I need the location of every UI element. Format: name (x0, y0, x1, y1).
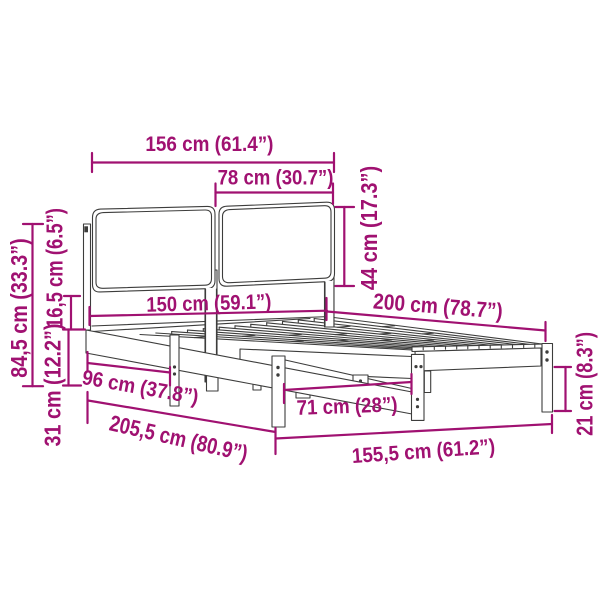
svg-text:71 cm (28”): 71 cm (28”) (296, 393, 398, 420)
svg-text:21 cm (8.3”): 21 cm (8.3”) (572, 332, 598, 436)
svg-text:78 cm (30.7”): 78 cm (30.7”) (218, 166, 334, 189)
svg-text:156 cm (61.4”): 156 cm (61.4”) (145, 133, 273, 156)
svg-text:16,5 cm (6.5”): 16,5 cm (6.5”) (43, 208, 69, 328)
svg-text:44 cm (17.3”): 44 cm (17.3”) (356, 166, 383, 290)
svg-text:84,5 cm (33.3”): 84,5 cm (33.3”) (5, 238, 32, 377)
svg-text:31 cm (12.2”): 31 cm (12.2”) (39, 324, 66, 447)
svg-text:150 cm (59.1”): 150 cm (59.1”) (146, 290, 272, 317)
